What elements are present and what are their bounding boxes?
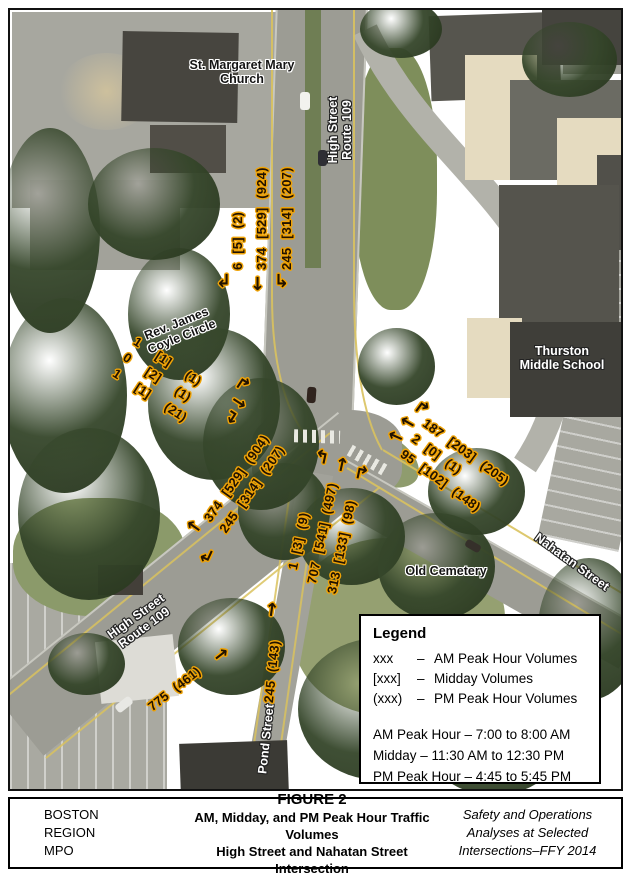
legend-symbol: (xxx): [373, 689, 417, 709]
volume-value: 245 [314] (207): [279, 167, 294, 270]
figure-title-block: BOSTON REGION MPO FIGURE 2 AM, Midday, a…: [8, 797, 623, 869]
car: [300, 92, 310, 110]
legend-periods: AM Peak Hour – 7:00 to 8:00 AM Midday – …: [373, 724, 587, 787]
tree-canopy: [18, 428, 160, 600]
project-line: Intersections–FFY 2014: [440, 842, 615, 860]
tree-canopy: [88, 148, 220, 260]
legend-box: Legend xxx – AM Peak Hour Volumes [xxx] …: [359, 614, 601, 784]
figure-title-line2: High Street and Nahatan Street Intersect…: [184, 843, 440, 877]
legend-title: Legend: [373, 625, 587, 642]
legend-dash: –: [417, 649, 434, 669]
legend-period-am: AM Peak Hour – 7:00 to 8:00 AM: [373, 724, 587, 745]
crosswalk-north: [294, 429, 340, 444]
figure-title-line1: AM, Midday, and PM Peak Hour Traffic Vol…: [184, 809, 440, 843]
agency-name: BOSTON REGION MPO: [10, 806, 184, 860]
agency-line: MPO: [44, 842, 184, 860]
map-label-high-street-north: High Street Route 109: [326, 90, 354, 170]
tree-canopy: [358, 328, 435, 405]
legend-period-pm: PM Peak Hour – 4:45 to 5:45 PM: [373, 766, 587, 787]
legend-symbol-row: [xxx] – Midday Volumes: [373, 669, 587, 689]
map-label-cemetery: Old Cemetery: [386, 564, 506, 578]
agency-line: BOSTON: [44, 806, 184, 824]
aerial-map: St. Margaret Mary Church High Street Rou…: [8, 8, 623, 791]
tree-canopy: [522, 22, 617, 97]
legend-period-midday: Midday – 11:30 AM to 12:30 PM: [373, 745, 587, 766]
map-label-school: Thurston Middle School: [502, 344, 622, 372]
legend-symbol: xxx: [373, 649, 417, 669]
legend-symbol-row: (xxx) – PM Peak Hour Volumes: [373, 689, 587, 709]
turn-arrow-icon: ↲: [216, 273, 231, 291]
volume-value: 374 [529] (924): [254, 167, 269, 270]
project-line: Analyses at Selected: [440, 824, 615, 842]
legend-symbol: [xxx]: [373, 669, 417, 689]
legend-label: AM Peak Hour Volumes: [434, 649, 577, 669]
legend-label: Midday Volumes: [434, 669, 533, 689]
volume-value: 6 [5] (2): [230, 212, 245, 270]
legend-dash: –: [417, 669, 434, 689]
car: [306, 387, 316, 404]
dark-building-south: [179, 740, 289, 791]
figure-caption: FIGURE 2 AM, Midday, and PM Peak Hour Tr…: [184, 790, 440, 877]
turn-arrow-icon: ↓: [250, 276, 265, 294]
legend-label: PM Peak Hour Volumes: [434, 689, 577, 709]
agency-line: REGION: [44, 824, 184, 842]
map-label-church: St. Margaret Mary Church: [177, 58, 307, 86]
legend-dash: –: [417, 689, 434, 709]
project-name: Safety and Operations Analyses at Select…: [440, 806, 621, 860]
turn-arrow-icon: ↳: [274, 273, 289, 291]
school-roof-d: [499, 185, 619, 330]
figure-page: { "map_labels": { "church": "St. Margare…: [0, 0, 633, 873]
turn-arrow-icon: ↑: [263, 601, 280, 621]
legend-symbol-row: xxx – AM Peak Hour Volumes: [373, 649, 587, 669]
figure-number: FIGURE 2: [184, 790, 440, 809]
project-line: Safety and Operations: [440, 806, 615, 824]
